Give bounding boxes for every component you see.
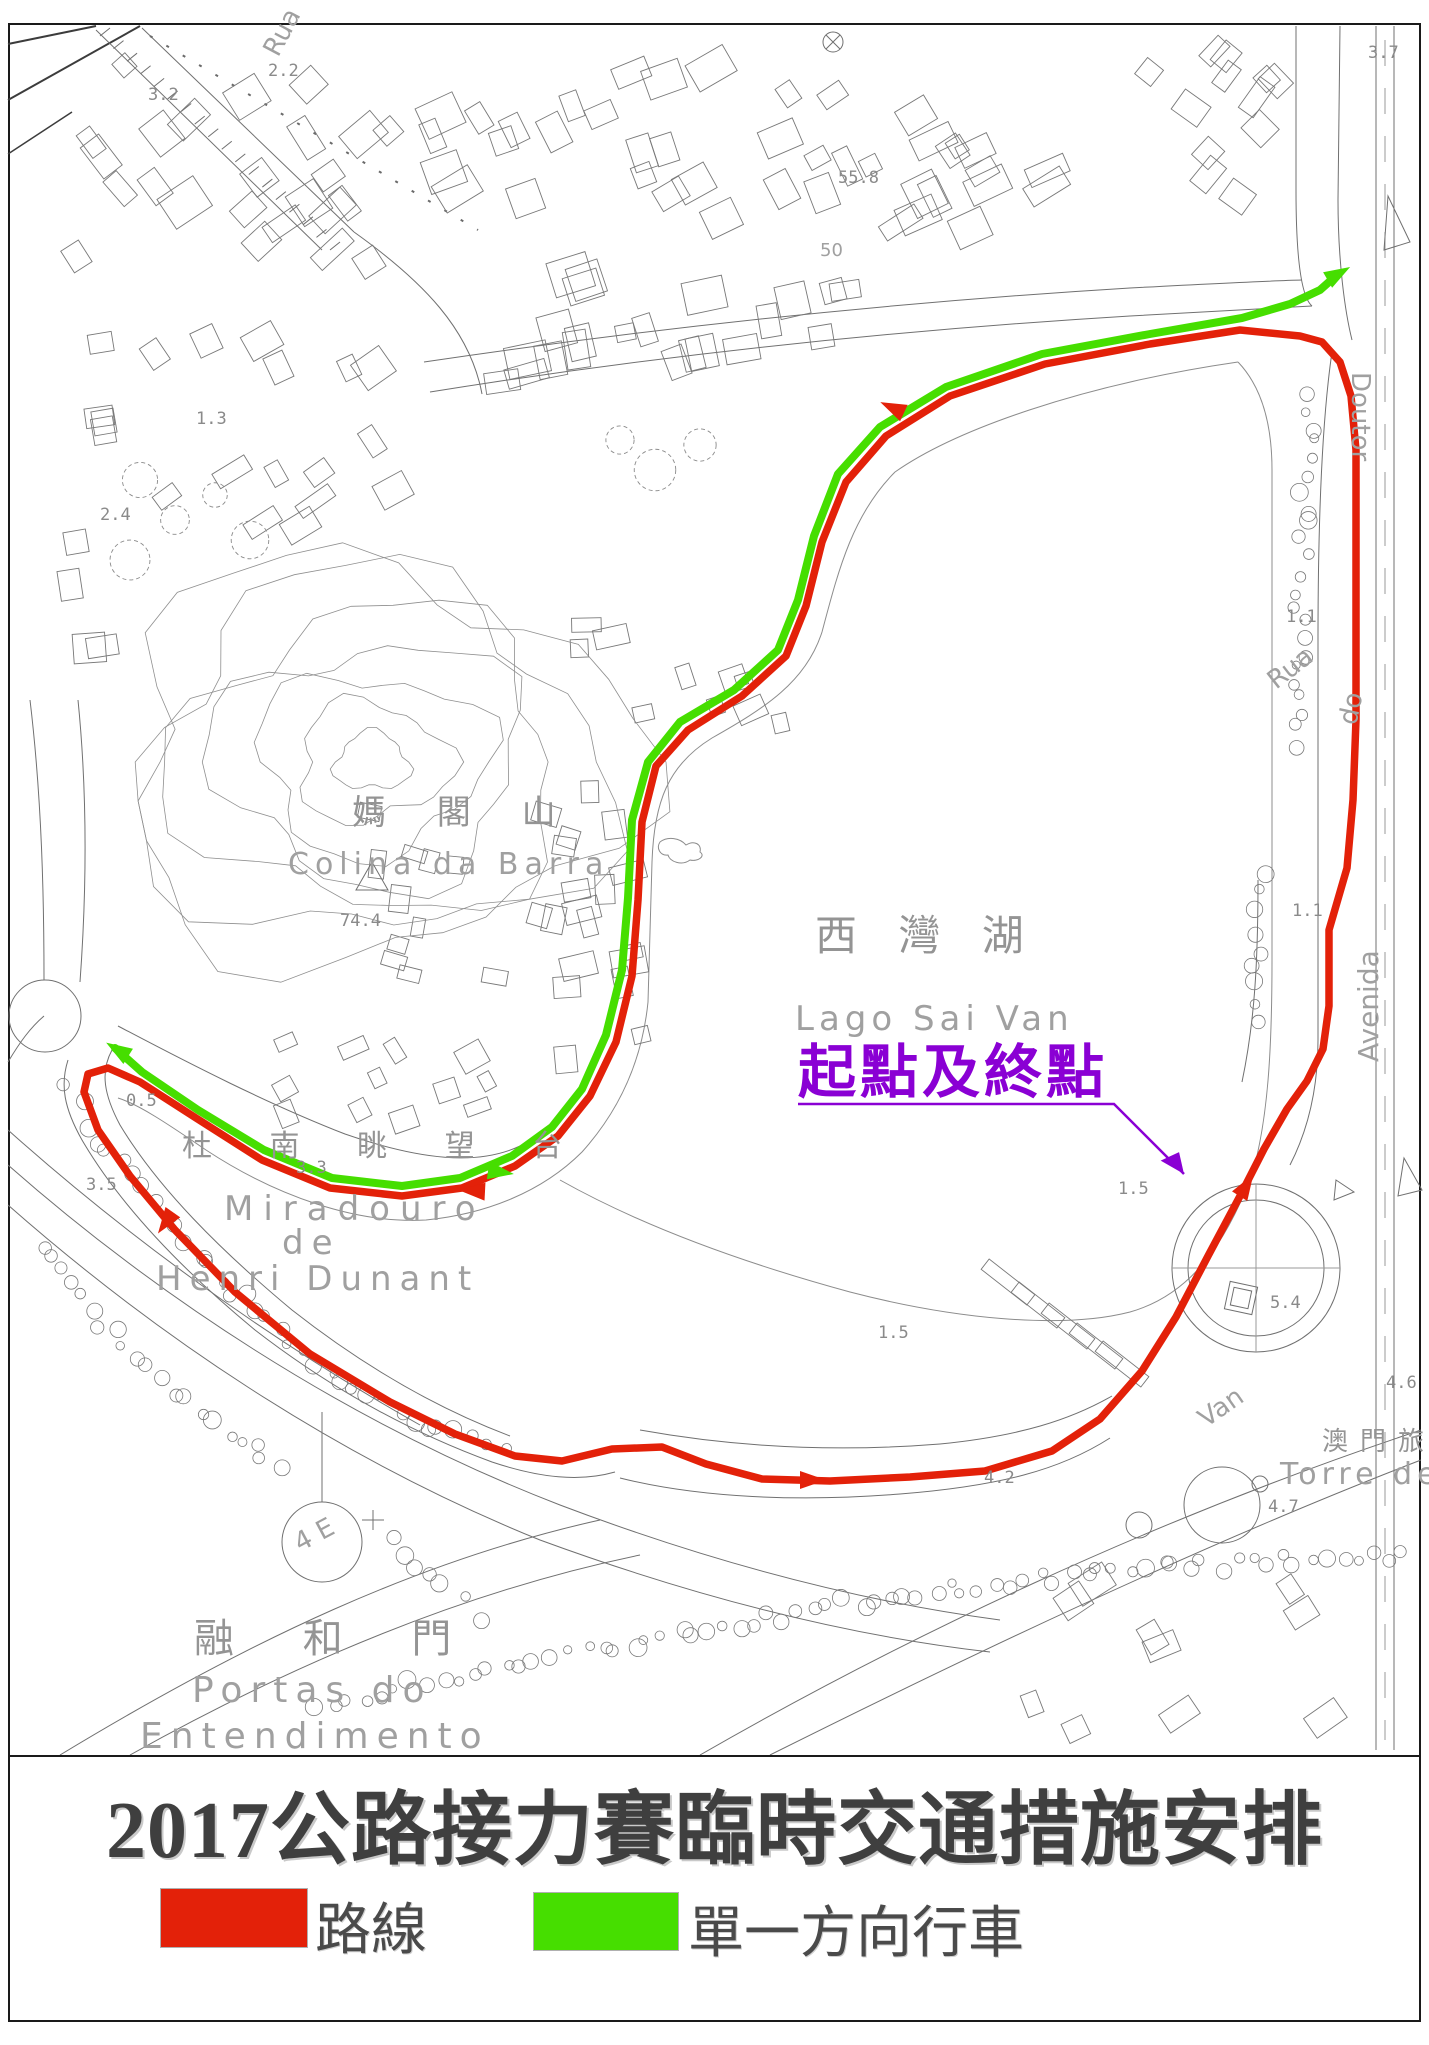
map-building	[565, 259, 607, 301]
map-building	[675, 663, 696, 690]
riprap-stone	[1301, 408, 1310, 417]
elevation-label: 2.4	[100, 505, 131, 525]
map-building	[1171, 89, 1211, 127]
elevation-label: 4.2	[984, 1468, 1015, 1488]
riprap-stone	[629, 1639, 647, 1657]
start-finish-annotation: 起點及終點	[798, 1038, 1192, 1179]
map-canvas: 西 灣 湖 Lago Sai Van 媽 閣 山 Colina da Barra…	[0, 0, 1429, 1755]
map-building	[901, 169, 949, 218]
map-building	[757, 118, 803, 159]
riprap-stone	[130, 1352, 144, 1366]
start-finish-label: 起點及終點	[798, 1038, 1108, 1106]
hatch-tick	[330, 242, 340, 250]
riprap-stone	[228, 1432, 238, 1442]
page: 西 灣 湖 Lago Sai Van 媽 閣 山 Colina da Barra…	[0, 0, 1429, 2045]
map-building	[488, 126, 518, 156]
map-building	[310, 228, 354, 270]
pier	[981, 1259, 1035, 1305]
map-building	[1283, 1595, 1320, 1630]
map-building	[372, 471, 414, 511]
riprap-stone	[1248, 927, 1263, 942]
map-building	[76, 126, 106, 158]
riprap-stone	[470, 1669, 482, 1681]
map-building	[477, 1071, 496, 1092]
map-building	[240, 157, 279, 197]
tree-symbol	[161, 506, 190, 535]
map-building	[454, 1039, 490, 1074]
riprap-stone	[75, 1288, 86, 1299]
riprap-stone	[1250, 999, 1260, 1009]
map-building	[1142, 1630, 1181, 1663]
riprap-stone	[138, 1358, 152, 1372]
riprap-stone	[832, 1589, 849, 1606]
riprap-stone	[64, 1276, 78, 1290]
map-building	[965, 156, 1000, 187]
riprap-stone	[478, 1662, 491, 1675]
map-building	[955, 133, 996, 169]
hatch-tick	[222, 141, 232, 149]
map-building	[1253, 65, 1280, 93]
contour-line	[138, 543, 670, 982]
contour-line	[254, 673, 503, 866]
map-building	[650, 132, 680, 167]
map-building	[774, 281, 811, 320]
legend-swatch-route	[160, 1888, 308, 1948]
map-building	[367, 1067, 387, 1089]
elevation-label: 2.2	[268, 61, 299, 81]
map-building	[829, 279, 861, 301]
tower-name-pt: Torre de Macau	[1279, 1457, 1429, 1492]
riprap-stone	[431, 1575, 448, 1592]
map-building	[592, 623, 630, 649]
map-detail-layer	[39, 28, 1406, 1743]
map-building	[1219, 178, 1257, 215]
map-building	[87, 331, 114, 354]
map-building	[1210, 40, 1242, 73]
riprap-stone	[1068, 1565, 1082, 1579]
map-building	[338, 1036, 370, 1061]
map-title: 2017公路接力賽臨時交通措施安排	[10, 1765, 1419, 1881]
map-building	[420, 150, 467, 195]
map-building	[685, 44, 737, 92]
riprap-stone	[523, 1654, 539, 1670]
riprap-stone	[717, 1621, 727, 1631]
hill-name-pt: Colina da Barra	[288, 847, 609, 882]
elevation-label: 3.5	[86, 1175, 117, 1195]
map-building	[348, 1097, 372, 1122]
riprap-stone	[586, 1642, 595, 1651]
map-building	[577, 906, 599, 937]
riprap-stone	[894, 1589, 910, 1605]
map-building	[1190, 155, 1227, 194]
riprap-stone	[57, 1078, 69, 1090]
map-building	[554, 1045, 578, 1074]
map-linework	[8, 26, 1422, 1755]
map-building	[763, 168, 800, 209]
hatch-tick	[181, 104, 191, 112]
map-building	[614, 323, 636, 343]
map-building	[1061, 1715, 1091, 1744]
elevation-label: 1.5	[1118, 1179, 1149, 1199]
riprap-stone	[948, 1579, 956, 1587]
map-building	[632, 704, 655, 723]
riprap-stone	[773, 1614, 789, 1630]
map-building	[465, 102, 494, 135]
riprap-stone	[461, 1592, 471, 1602]
riprap-stone	[1246, 901, 1262, 917]
riprap-stone	[1306, 423, 1321, 438]
map-building	[388, 885, 411, 914]
map-building	[947, 206, 993, 250]
map-building	[1238, 77, 1275, 118]
map-building	[632, 313, 659, 347]
map-building	[287, 115, 326, 160]
map-building	[264, 460, 289, 488]
map-building	[1024, 153, 1070, 187]
riprap-stone	[238, 1438, 247, 1447]
contour-50-label: 50	[820, 240, 843, 261]
miradouro-line2: de	[282, 1223, 341, 1263]
map-building	[272, 1075, 299, 1101]
map-building	[303, 458, 334, 488]
lookout-name-zh: 杜 南 眺 望 台	[182, 1129, 586, 1164]
map-building	[223, 73, 272, 120]
map-building	[1199, 35, 1230, 67]
map-building	[771, 712, 790, 734]
street-van: Van	[1193, 1382, 1250, 1434]
riprap-stone	[1307, 453, 1317, 463]
riprap-stone	[253, 1452, 265, 1464]
pier	[1095, 1341, 1149, 1387]
riprap-stone	[908, 1591, 922, 1605]
hatch-tick	[262, 179, 272, 187]
hatch-tick	[249, 166, 259, 174]
elevation-label: 4.7	[1268, 1497, 1299, 1517]
riprap-stone	[407, 1560, 423, 1576]
elevation-label: 3.2	[148, 85, 179, 105]
hatch-tick	[276, 192, 286, 200]
map-building	[212, 455, 253, 489]
map-building	[463, 1097, 491, 1118]
elevation-label: 1.3	[196, 409, 227, 429]
riprap-stone	[1309, 1555, 1319, 1565]
map-building	[562, 329, 590, 370]
map-building	[1304, 1698, 1348, 1739]
map-building	[526, 902, 552, 928]
riprap-stone	[91, 1321, 104, 1334]
riprap-stone	[1259, 1558, 1273, 1572]
riprap-stone	[991, 1579, 1004, 1592]
pier	[1041, 1303, 1095, 1349]
map-building	[139, 338, 170, 371]
hatch-tick	[100, 28, 110, 36]
map-building	[190, 324, 223, 359]
map-building	[157, 176, 213, 229]
gates-name-zh: 融 和 門	[194, 1616, 479, 1662]
map-building	[241, 221, 282, 261]
riprap-stone	[252, 1439, 264, 1451]
riprap-stone	[1289, 740, 1304, 755]
street-rua-right: Rua	[1262, 642, 1319, 696]
pier	[1069, 1323, 1123, 1369]
hatch-tick	[114, 41, 124, 49]
route-layer	[84, 259, 1356, 1489]
riprap-stone	[1394, 1545, 1406, 1557]
map-building	[295, 484, 336, 519]
riprap-stone	[1250, 1553, 1259, 1562]
riprap-stone	[1252, 1015, 1266, 1029]
map-building	[498, 112, 530, 147]
map-building	[350, 346, 396, 391]
riprap-stone	[1284, 1557, 1299, 1572]
map-building	[240, 321, 284, 362]
contour-line	[330, 728, 414, 789]
elevation-label: 1.5	[878, 1323, 909, 1343]
miradouro-line1: Miradouro	[224, 1189, 486, 1229]
map-building	[431, 165, 483, 213]
riprap-stone	[110, 1321, 126, 1337]
map-building	[699, 197, 743, 239]
riprap-stone	[970, 1586, 981, 1597]
map-building	[57, 568, 83, 601]
riprap-stone	[1246, 973, 1263, 990]
map-building	[1020, 1690, 1044, 1718]
riprap-stone	[176, 1389, 191, 1404]
riprap-stone	[423, 1568, 436, 1581]
map-building	[546, 252, 596, 298]
map-building	[263, 350, 294, 385]
elevation-label: 3.7	[1368, 43, 1399, 63]
map-building	[581, 781, 599, 803]
riprap-stone	[1162, 1556, 1177, 1571]
riprap-stone	[541, 1650, 557, 1666]
miradouro-line3: Henri Dunant	[156, 1259, 479, 1299]
riprap-stone	[759, 1606, 773, 1620]
map-building	[652, 176, 690, 212]
race-route-line	[84, 330, 1356, 1481]
map-building	[804, 145, 831, 170]
tree-symbol	[634, 449, 675, 490]
elevation-label: 74.4	[340, 911, 381, 931]
riprap-stone	[203, 1411, 221, 1429]
riprap-stone	[505, 1661, 515, 1671]
start-finish-leader	[798, 1104, 1184, 1174]
lake-name-zh: 西 灣 湖	[815, 911, 1038, 960]
riprap-stone	[1289, 718, 1301, 730]
start-finish-arrowhead	[1161, 1147, 1193, 1179]
riprap-stone	[439, 1673, 454, 1688]
riprap-stone	[1290, 483, 1308, 501]
riprap-stone	[655, 1631, 664, 1640]
tree-symbol	[203, 483, 228, 508]
map-building	[909, 121, 958, 160]
riprap-stone	[1294, 690, 1304, 700]
lamp-symbol-label: 4 E	[289, 1512, 339, 1558]
map-building	[336, 354, 361, 382]
riprap-stone	[1235, 1553, 1245, 1563]
riprap-stone	[1003, 1581, 1017, 1595]
hatch-tick	[195, 116, 205, 124]
riprap-stone	[155, 1370, 170, 1385]
map-building	[397, 965, 422, 984]
riprap-stone	[932, 1586, 946, 1600]
map-building	[681, 275, 728, 315]
legend-label-oneway: 單一方向行車	[688, 1888, 1024, 1969]
riprap-stone	[1255, 884, 1265, 894]
riprap-stone	[1300, 387, 1315, 402]
map-building	[433, 1077, 461, 1104]
map-building	[80, 134, 122, 179]
map-building	[72, 632, 106, 664]
street-rua-top: Rua	[258, 4, 308, 62]
map-building	[1192, 136, 1225, 169]
riprap-stone	[1339, 1552, 1353, 1566]
riprap-stone	[1367, 1546, 1380, 1559]
riprap-stone	[39, 1242, 51, 1254]
map-building	[808, 324, 835, 350]
map-building	[137, 167, 173, 205]
gates-name-pt2: Entendimento	[140, 1716, 490, 1755]
map-building	[570, 639, 588, 658]
map-building	[817, 80, 849, 110]
riprap-stone	[698, 1623, 715, 1640]
map-building	[139, 110, 185, 157]
map-building	[63, 529, 89, 555]
riprap-stone	[116, 1342, 125, 1351]
tree-symbol	[110, 540, 150, 580]
riprap-stone	[387, 1530, 401, 1544]
tree-symbol	[122, 462, 157, 497]
race-route-arrow	[800, 1471, 826, 1489]
map-building	[804, 172, 841, 213]
title-block: 2017公路接力賽臨時交通措施安排 路線 單一方向行車	[10, 1757, 1419, 2020]
hill-name-zh: 媽 閣 山	[352, 793, 576, 833]
riprap-stone	[1318, 1550, 1335, 1567]
map-building	[339, 110, 389, 158]
map-building	[357, 425, 387, 458]
map-building	[756, 303, 782, 339]
map-building	[61, 240, 92, 273]
riprap-stone	[454, 1677, 463, 1686]
map-building	[419, 118, 447, 153]
legend-label-route: 路線	[315, 1885, 427, 1966]
riprap-stone	[1302, 471, 1314, 483]
street-avenida: Avenida	[1352, 950, 1385, 1062]
riprap-stone	[1292, 530, 1305, 543]
riprap-stone	[1038, 1568, 1047, 1577]
riprap-stone	[1184, 1561, 1199, 1576]
map-building	[352, 245, 386, 279]
elevation-label: 3.3	[296, 1158, 327, 1178]
map-building	[1241, 109, 1279, 147]
elevation-label: 55.8	[838, 168, 879, 188]
hatch-tick	[235, 154, 245, 162]
map-labels: 西 灣 湖 Lago Sai Van 媽 閣 山 Colina da Barra…	[140, 4, 1429, 1755]
map-building	[626, 133, 659, 173]
riprap-stone	[1300, 512, 1318, 530]
tower-name-zh: 澳門旅遊塔	[1322, 1427, 1429, 1457]
map-building	[274, 1032, 298, 1052]
map-building	[963, 164, 1013, 206]
map-building	[559, 90, 585, 122]
riprap-stone	[1295, 572, 1306, 583]
map-building	[553, 976, 581, 999]
map-building	[381, 950, 408, 970]
legend-swatch-oneway	[533, 1892, 679, 1951]
map-building	[894, 194, 942, 236]
map-building	[671, 162, 717, 205]
map-building	[505, 178, 545, 218]
map-building	[279, 506, 321, 545]
elevation-label: 1.1	[1286, 607, 1317, 627]
riprap-stone	[55, 1262, 67, 1274]
elevation-label: 0.5	[126, 1091, 157, 1111]
riprap-stone	[1244, 958, 1259, 973]
riprap-stone	[1016, 1574, 1029, 1587]
hatch-tick	[141, 66, 151, 74]
riprap-stone	[1216, 1564, 1231, 1579]
map-building	[1136, 1619, 1169, 1655]
map-building	[152, 483, 182, 511]
map-building	[481, 967, 508, 986]
map-building	[1276, 1574, 1304, 1604]
riprap-stone	[396, 1547, 414, 1565]
border-bottom	[8, 2020, 1421, 2022]
riprap-stone	[274, 1460, 290, 1476]
map-building	[535, 111, 572, 153]
street-doutor: Doutor	[1345, 372, 1375, 462]
riprap-stone	[1354, 1556, 1363, 1565]
elevation-label: 5.4	[1270, 1293, 1301, 1313]
map-building	[243, 506, 283, 540]
map-building	[1135, 58, 1164, 87]
map-building	[584, 99, 619, 129]
riprap-stone	[1192, 1554, 1203, 1565]
hatch-tick	[208, 129, 218, 137]
map-building	[85, 634, 119, 659]
map-building	[229, 191, 266, 228]
riprap-stone	[1105, 1563, 1115, 1573]
riprap-stone	[789, 1605, 802, 1618]
gates-name-pt1: Portas do	[192, 1670, 433, 1711]
street-do: do	[1334, 690, 1370, 728]
map-building	[775, 80, 802, 108]
riprap-stone	[734, 1621, 750, 1637]
riprap-stone	[1304, 549, 1315, 560]
map-building	[1023, 166, 1071, 207]
riprap-stone	[1137, 1559, 1155, 1577]
elevation-label: 1.1	[1292, 901, 1323, 921]
map-building	[504, 358, 550, 389]
tree-symbol	[684, 429, 716, 461]
map-building	[383, 1037, 407, 1064]
elevation-label: 4.6	[1386, 1373, 1417, 1393]
riprap-stone	[1044, 1576, 1058, 1590]
map-building	[262, 205, 306, 243]
riprap-stone	[1254, 947, 1268, 961]
map-building	[1159, 1695, 1201, 1733]
map-building	[562, 268, 604, 306]
tree-symbol	[606, 426, 634, 454]
lake-name-pt: Lago Sai Van	[795, 999, 1074, 1039]
riprap-stone	[45, 1250, 58, 1263]
riprap-stone	[1291, 590, 1301, 600]
riprap-stone	[954, 1589, 963, 1598]
map-building	[917, 176, 952, 218]
riprap-stone	[564, 1646, 572, 1654]
map-building	[484, 369, 521, 395]
riprap-stone	[87, 1303, 103, 1319]
